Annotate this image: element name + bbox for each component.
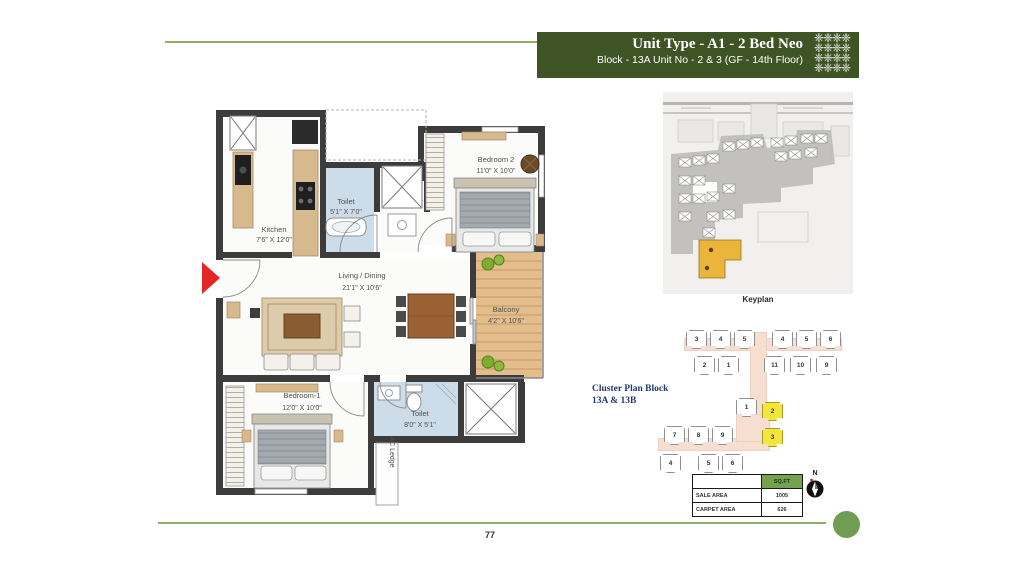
north-compass: N — [804, 470, 826, 504]
toilet2-dims: 8'0" X 5'1" — [404, 422, 436, 429]
area-statement-table: SQ.FT SALE AREA 1005 CARPET AREA 626 — [692, 474, 803, 517]
bedroom2-label: Bedroom 2 — [478, 155, 515, 164]
foyer-shelf — [227, 302, 240, 318]
floor-plan-drawing: Kitchen 7'6" X 12'0" Toilet 5'1" X 7'0" … — [200, 100, 560, 520]
cluster-unit-3: 3 — [686, 330, 707, 349]
balcony-dims: 4'2" X 10'6" — [488, 318, 524, 325]
cluster-unit-4: 4 — [772, 330, 793, 349]
keyplan-map — [663, 92, 853, 294]
cluster-unit-9: 9 — [816, 356, 837, 375]
floor-plan: Kitchen 7'6" X 12'0" Toilet 5'1" X 7'0" … — [200, 100, 560, 520]
cluster-unit-5: 5 — [796, 330, 817, 349]
header-rule — [165, 41, 537, 43]
title-banner: Unit Type - A1 - 2 Bed Neo Block - 13A U… — [537, 32, 859, 78]
cluster-caption-line2: 13A & 13B — [592, 395, 692, 407]
floral-ornament-icon: ❈❈❈❈❈❈❈❈❈❈❈❈❈❈❈❈ — [808, 33, 856, 77]
cluster-unit-7: 7 — [664, 426, 685, 445]
table-row: CARPET AREA 626 — [693, 503, 803, 517]
sale-area-value: 1005 — [762, 489, 803, 503]
carpet-area-value: 626 — [762, 503, 803, 517]
cluster-unit-4: 4 — [710, 330, 731, 349]
brochure-page: Unit Type - A1 - 2 Bed Neo Block - 13A U… — [0, 0, 1024, 576]
overhead-projection — [326, 110, 426, 160]
cluster-unit-10: 10 — [790, 356, 811, 375]
toilet1-dims: 5'1" X 7'0" — [330, 209, 362, 216]
cluster-unit-6: 6 — [820, 330, 841, 349]
cluster-unit-5: 5 — [698, 454, 719, 473]
cluster-unit-3-highlighted: 3 — [762, 428, 783, 447]
compass-icon — [804, 477, 826, 499]
bedroom1-label: Bedroom-1 — [283, 391, 320, 400]
toilet2-label: Toilet — [411, 409, 429, 418]
page-subtitle: Block - 13A Unit No - 2 & 3 (GF - 14th F… — [537, 53, 803, 67]
table-header-empty — [693, 475, 762, 489]
green-dot-decoration — [833, 511, 860, 538]
balcony-label: Balcony — [493, 305, 520, 314]
table-row: SQ.FT — [693, 475, 803, 489]
cluster-unit-2-highlighted: 2 — [762, 402, 783, 421]
cluster-caption-line1: Cluster Plan Block — [592, 383, 692, 395]
page-number: 77 — [468, 530, 512, 540]
table-row: SALE AREA 1005 — [693, 489, 803, 503]
living-dims: 21'1" X 10'6" — [342, 285, 382, 292]
cluster-unit-1: 1 — [736, 398, 757, 417]
entry-arrow-icon — [202, 262, 220, 294]
footer-rule — [158, 522, 826, 524]
bedroom1-dims: 12'0" X 10'0" — [282, 405, 322, 412]
page-title: Unit Type - A1 - 2 Bed Neo — [537, 36, 803, 53]
cluster-unit-4: 4 — [660, 454, 681, 473]
cluster-unit-6: 6 — [722, 454, 743, 473]
cluster-unit-9: 9 — [712, 426, 733, 445]
sale-area-label: SALE AREA — [693, 489, 762, 503]
kitchen-dims: 7'6" X 12'0" — [256, 237, 292, 244]
bedroom2-dims: 11'0" X 10'0" — [476, 168, 516, 175]
north-label: N — [804, 470, 826, 477]
carpet-area-label: CARPET AREA — [693, 503, 762, 517]
kitchen-label: Kitchen — [261, 225, 286, 234]
living-label: Living / Dining — [338, 271, 385, 280]
table-header-unit: SQ.FT — [762, 475, 803, 489]
cluster-unit-2: 2 — [694, 356, 715, 375]
cluster-unit-1: 1 — [718, 356, 739, 375]
cluster-unit-5: 5 — [734, 330, 755, 349]
cluster-unit-8: 8 — [688, 426, 709, 445]
ac-ledge-label: AC Ledge — [388, 436, 395, 467]
cluster-plan-caption: Cluster Plan Block 13A & 13B — [592, 383, 692, 407]
cluster-unit-11: 11 — [764, 356, 785, 375]
toilet1-label: Toilet — [337, 197, 355, 206]
keyplan-label: Keyplan — [663, 295, 853, 304]
